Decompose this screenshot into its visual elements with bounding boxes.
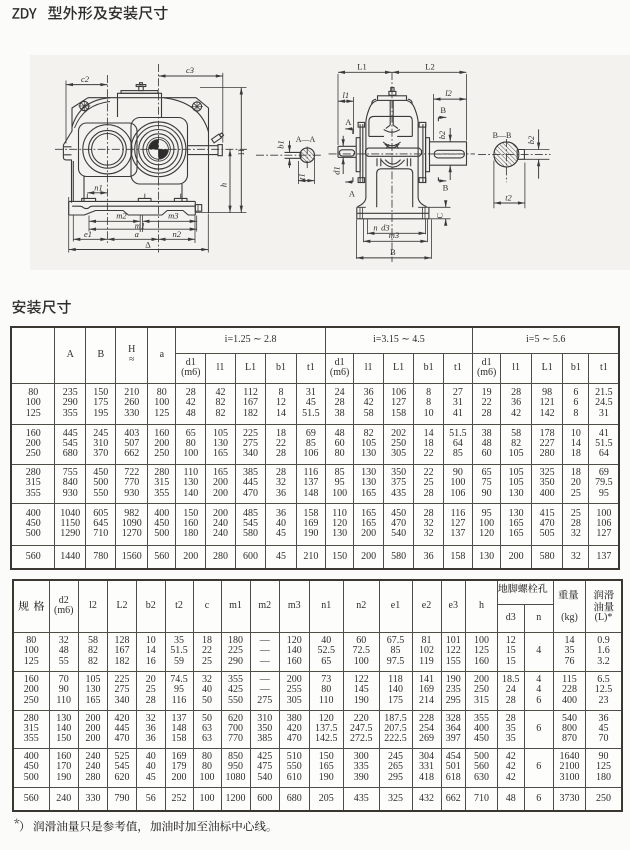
svg-text:L1: L1 xyxy=(357,61,366,71)
svg-text:b2: b2 xyxy=(437,130,447,139)
svg-text:h: h xyxy=(219,183,229,187)
svg-text:Δ: Δ xyxy=(145,239,151,249)
svg-text:l1: l1 xyxy=(342,90,349,100)
svg-text:e1: e1 xyxy=(84,229,92,239)
svg-text:m3: m3 xyxy=(168,211,178,221)
svg-text:c3: c3 xyxy=(186,65,194,75)
svg-text:n1: n1 xyxy=(94,183,103,193)
svg-text:l2: l2 xyxy=(445,88,452,98)
svg-text:B: B xyxy=(390,247,396,257)
svg-text:n d3: n d3 xyxy=(373,223,389,233)
svg-text:b1: b1 xyxy=(276,140,286,149)
svg-text:H: H xyxy=(236,149,246,155)
svg-text:B—B: B—B xyxy=(493,131,512,140)
svg-text:a: a xyxy=(135,229,139,239)
svg-text:B: B xyxy=(443,183,449,193)
svg-text:c2: c2 xyxy=(81,74,90,84)
svg-text:A: A xyxy=(349,189,356,199)
svg-text:t1: t1 xyxy=(297,173,307,180)
svg-text:B: B xyxy=(440,105,446,115)
svg-text:t2: t2 xyxy=(505,192,512,202)
svg-text:A: A xyxy=(345,117,352,127)
svg-text:b2: b2 xyxy=(526,135,536,144)
svg-text:m3: m3 xyxy=(389,230,399,240)
svg-text:L2: L2 xyxy=(425,61,434,71)
svg-text:C: C xyxy=(434,213,444,219)
svg-text:d1: d1 xyxy=(332,166,342,175)
svg-text:n2: n2 xyxy=(172,229,181,239)
svg-text:m2: m2 xyxy=(116,211,127,221)
svg-text:A—A: A—A xyxy=(296,135,316,144)
